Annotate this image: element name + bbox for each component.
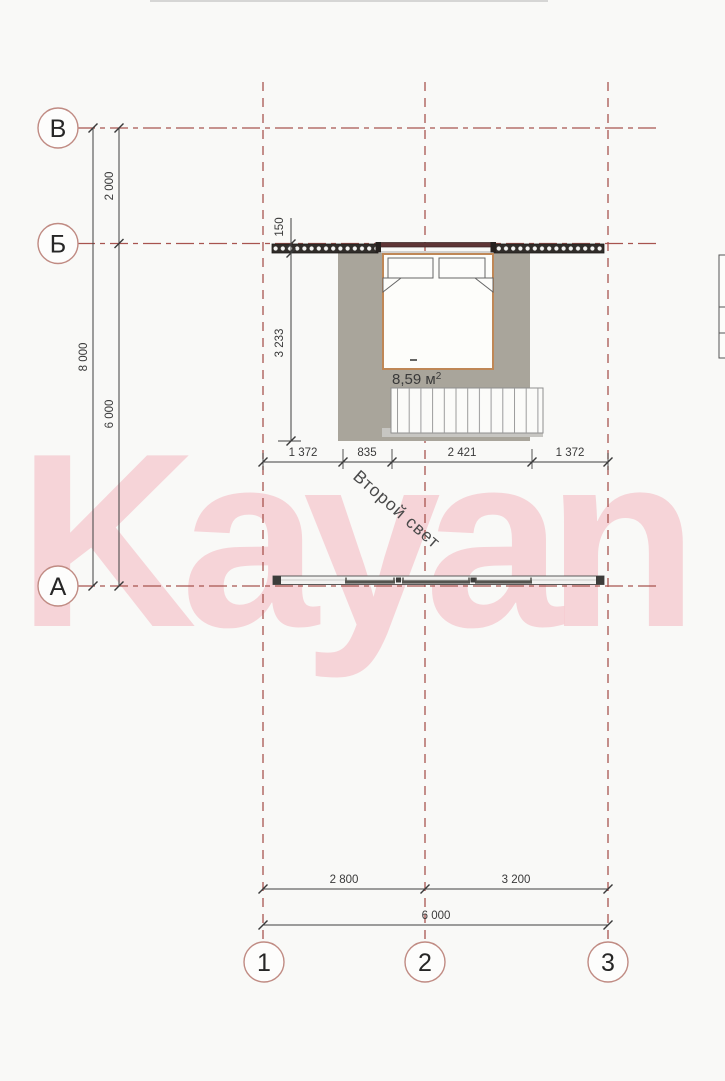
floor-plan-drawing: Kayan 8,59 м2 Второй свет bbox=[0, 0, 725, 1081]
cutoff-table-right-edge bbox=[719, 255, 725, 358]
axis-marker-row-v: В bbox=[38, 108, 78, 148]
axis-label: 2 bbox=[418, 949, 432, 977]
dim-label-2421: 2 421 bbox=[448, 447, 477, 459]
room-area-value: 8,59 м bbox=[392, 371, 436, 388]
mullion-block bbox=[396, 578, 401, 583]
dim-label-2800: 2 800 bbox=[330, 874, 359, 886]
pillow-left bbox=[388, 258, 433, 278]
room-area-superscript: 2 bbox=[436, 371, 442, 382]
photo-edge-artifact bbox=[150, 0, 548, 2]
window-post-right bbox=[491, 242, 497, 253]
mullion-block bbox=[471, 578, 476, 583]
kayan-watermark: Kayan bbox=[18, 401, 684, 679]
dim-label-6000-bottom: 6 000 bbox=[422, 910, 451, 922]
glazing-band-axis-a bbox=[273, 576, 604, 585]
glazing-post-right bbox=[596, 576, 604, 585]
axis-marker-col-3: 3 bbox=[588, 942, 628, 982]
room-area-label: 8,59 м2 bbox=[392, 371, 442, 388]
dim-label-150: 150 bbox=[274, 217, 286, 236]
dim-label-3233: 3 233 bbox=[274, 329, 286, 358]
axis-label: Б bbox=[50, 231, 66, 259]
window-frame-bar bbox=[378, 243, 494, 248]
bed bbox=[383, 254, 493, 369]
pillow-right bbox=[439, 258, 485, 278]
dim-label-3200: 3 200 bbox=[502, 874, 531, 886]
axis-marker-row-b: Б bbox=[38, 224, 78, 264]
dim-label-8000: 8 000 bbox=[78, 343, 90, 372]
staircase bbox=[382, 388, 543, 437]
dim-label-2000: 2 000 bbox=[104, 172, 116, 201]
dim-label-1372-b: 1 372 bbox=[556, 447, 585, 459]
axis-marker-col-1: 1 bbox=[244, 942, 284, 982]
glazing-post-left bbox=[273, 576, 281, 585]
axis-label: А bbox=[50, 573, 67, 601]
axis-label: 3 bbox=[601, 949, 615, 977]
floor-plan-sheet: Kayan 8,59 м2 Второй свет bbox=[0, 0, 725, 1081]
dim-label-1372-a: 1 372 bbox=[289, 447, 318, 459]
stair-treads bbox=[391, 388, 543, 433]
dim-label-835: 835 bbox=[357, 447, 376, 459]
axis-label: В bbox=[50, 115, 67, 143]
log-wall-right bbox=[494, 244, 604, 253]
log-wall-left bbox=[272, 244, 378, 253]
axis-marker-col-2: 2 bbox=[405, 942, 445, 982]
axis-marker-row-a: А bbox=[38, 566, 78, 606]
window-post-left bbox=[376, 242, 382, 253]
axis-label: 1 bbox=[257, 949, 271, 977]
dim-label-6000-left: 6 000 bbox=[104, 400, 116, 429]
